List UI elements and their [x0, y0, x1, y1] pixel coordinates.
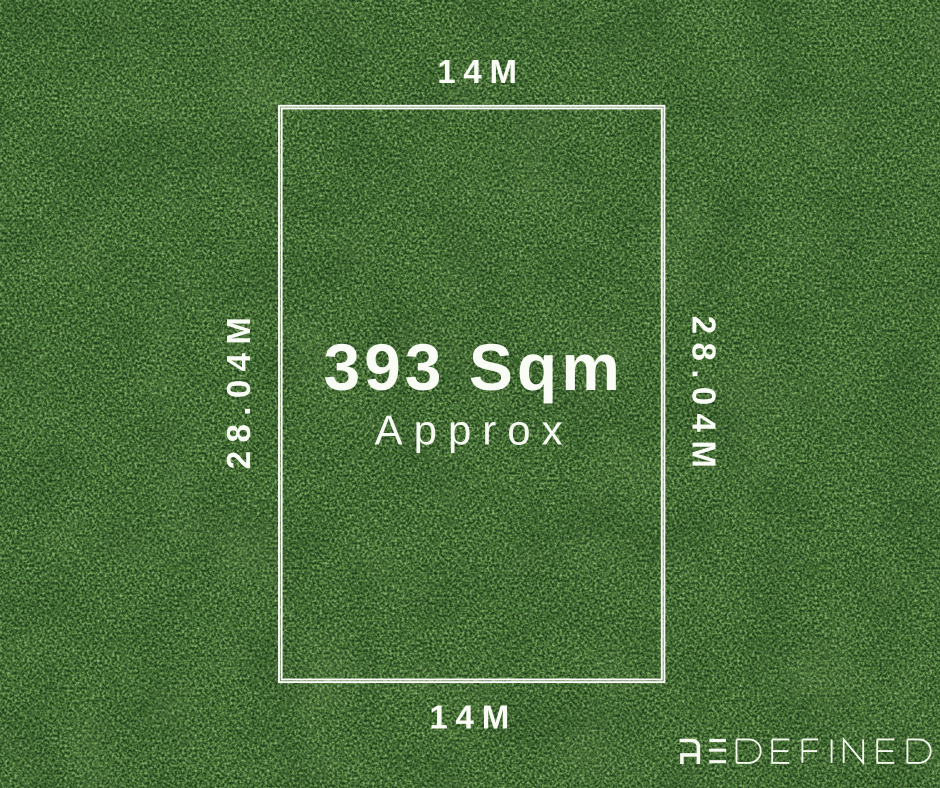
svg-text:393: 393	[324, 330, 442, 404]
svg-text:14M: 14M	[429, 698, 517, 735]
svg-text:14M: 14M	[437, 53, 525, 90]
svg-text:28.04M: 28.04M	[220, 309, 257, 469]
svg-text:Sqm: Sqm	[469, 330, 620, 404]
svg-text:28.04M: 28.04M	[686, 316, 723, 476]
